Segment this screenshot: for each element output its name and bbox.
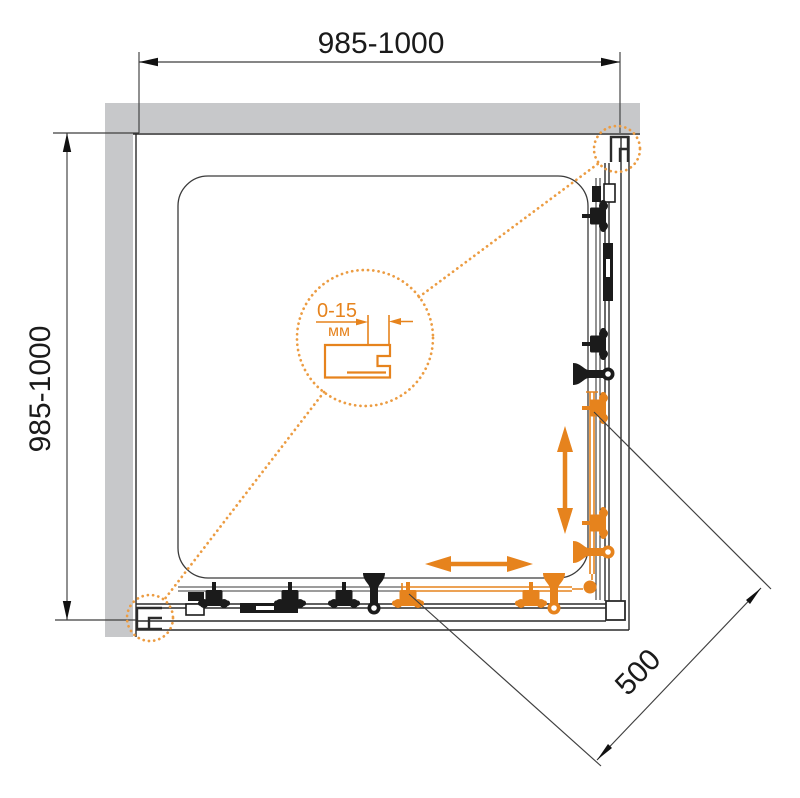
detail-arrow-left xyxy=(389,318,401,325)
adjustment-unit-label: мм xyxy=(328,323,350,340)
arrow-head-right xyxy=(507,556,533,572)
adjustment-range-label: 0-15 xyxy=(317,300,357,322)
roller-black xyxy=(582,200,608,232)
callout-leader-bottom-left xyxy=(164,392,324,600)
roller-orange xyxy=(515,582,547,608)
arrowhead-left xyxy=(139,58,158,66)
guide-block xyxy=(188,592,204,601)
wall-left xyxy=(105,103,133,637)
slide-arrow-vertical xyxy=(557,426,573,534)
arrowhead-bottom xyxy=(63,601,71,620)
right-glass-lines xyxy=(596,178,600,600)
arrowhead-upper xyxy=(746,588,761,604)
slide-direction-arrows xyxy=(425,426,573,572)
seal-profile-slot xyxy=(606,259,610,277)
callout-leader-top-right xyxy=(419,163,599,297)
arrow-head-left xyxy=(425,556,451,572)
left-dimension-label: 985-1000 xyxy=(24,326,57,453)
slide-arrow-horizontal xyxy=(425,556,533,572)
roller-orange xyxy=(582,392,608,424)
wall-profile-section xyxy=(137,608,162,629)
detail-circle xyxy=(297,270,433,406)
guide-block xyxy=(592,186,601,202)
walls xyxy=(105,103,640,637)
extension-line xyxy=(409,594,601,766)
door-corner-joint xyxy=(584,581,597,594)
roller-black xyxy=(328,582,360,608)
detail-arrow-right xyxy=(356,319,368,326)
arrow-head-up xyxy=(557,426,573,452)
door-knob-black xyxy=(573,363,615,385)
arrowhead-right xyxy=(601,58,620,66)
enclosure-frame xyxy=(136,136,629,630)
wall-profile-section xyxy=(611,137,628,162)
corner-profile-bottom-left xyxy=(127,595,173,641)
seal-profile-slot xyxy=(256,606,274,610)
shower-enclosure-plan-drawing: 985-1000 985-1000 0 xyxy=(0,0,800,798)
detail-callout: 0-15 мм xyxy=(164,163,599,600)
arrowhead-lower xyxy=(597,744,612,760)
roller-orange xyxy=(582,507,608,539)
wall-top xyxy=(105,103,640,133)
arrow-head-down xyxy=(557,508,573,534)
arrowhead-top xyxy=(63,133,71,152)
roller-black xyxy=(582,328,608,360)
frame-corner-block xyxy=(606,601,625,620)
roller-orange xyxy=(392,582,424,608)
mounting-plate xyxy=(604,184,615,202)
drawing-canvas: 985-1000 985-1000 0 xyxy=(0,0,800,798)
bottom-door-glass xyxy=(402,583,572,595)
top-dimension-label: 985-1000 xyxy=(318,27,445,60)
diagonal-dimension-label: 500 xyxy=(609,643,668,702)
